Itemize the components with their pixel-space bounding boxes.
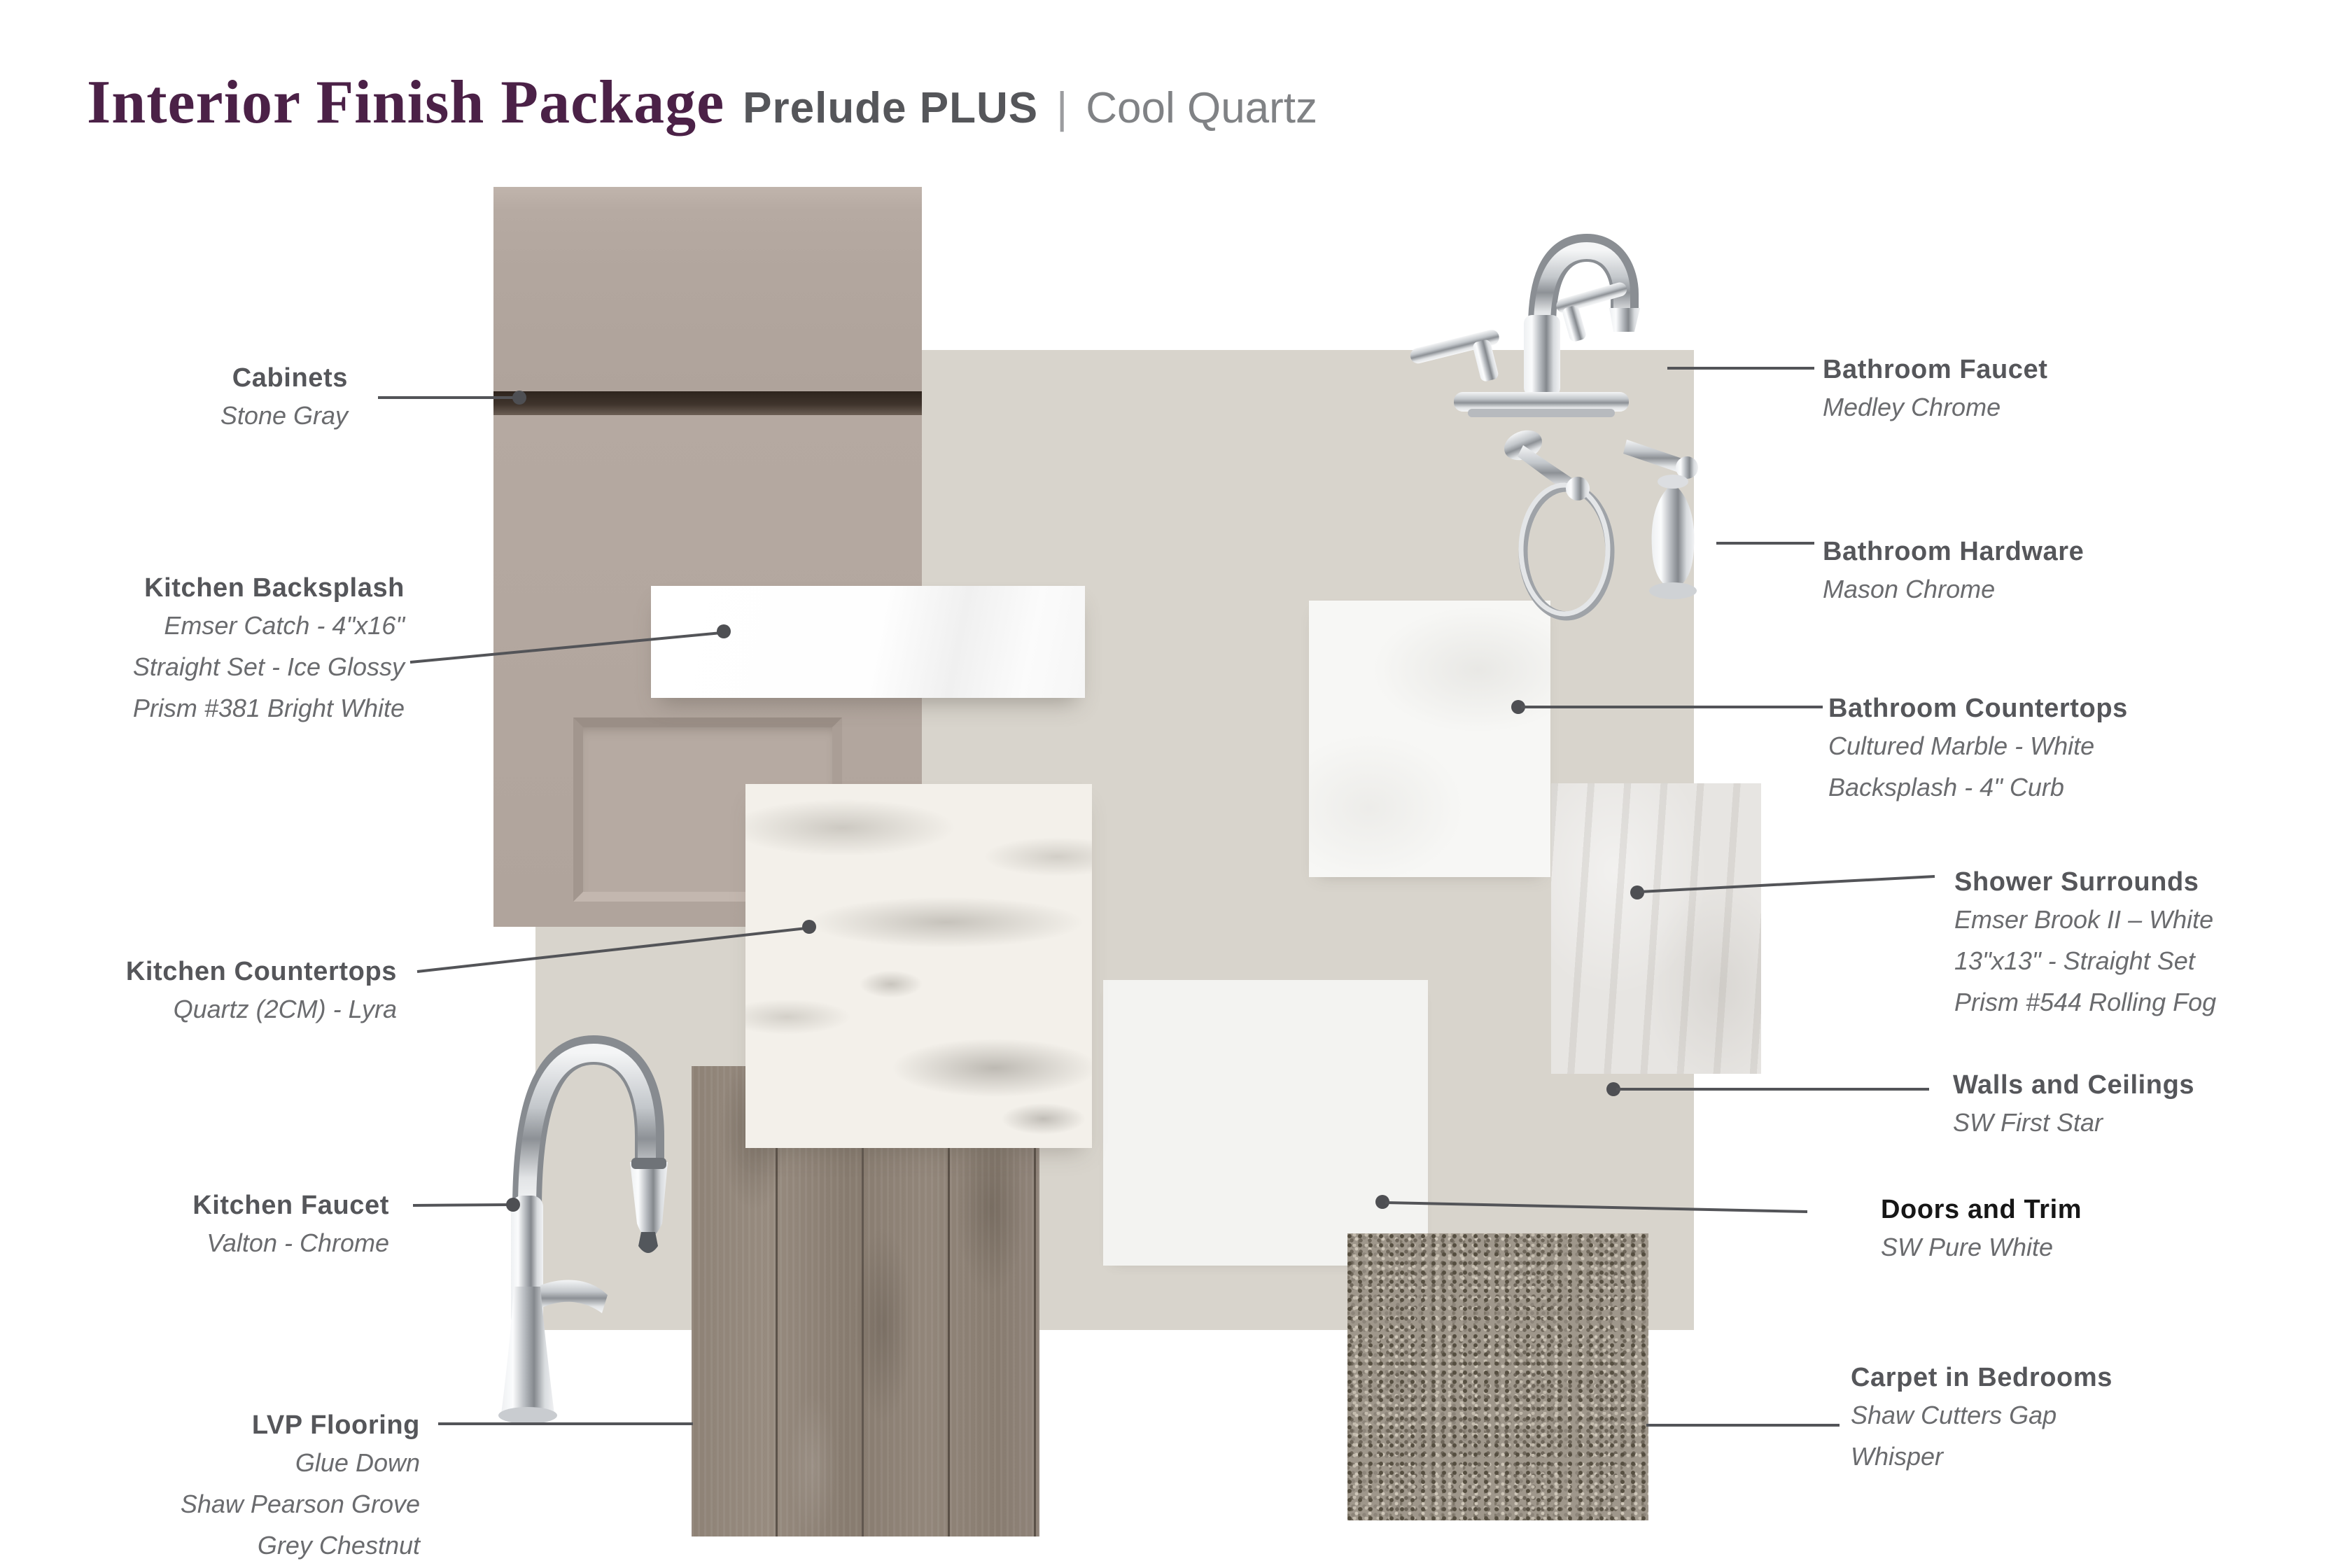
label-kitchen-faucet-sub: Valton - Chrome xyxy=(192,1222,389,1263)
cabinet-shadow-band xyxy=(493,391,922,415)
label-cabinets-title: Cabinets xyxy=(220,361,348,395)
label-kitchen-backsplash-title: Kitchen Backsplash xyxy=(133,571,405,605)
kitchen-countertop-swatch xyxy=(745,784,1092,1148)
label-walls-ceilings: Walls and Ceilings SW First Star xyxy=(1953,1068,2194,1143)
label-kitchen-backsplash-sub: Prism #381 Bright White xyxy=(133,687,405,729)
label-shower-surrounds-sub: 13"x13" - Straight Set xyxy=(1954,940,2216,981)
label-carpet-bedrooms-sub: Shaw Cutters Gap xyxy=(1851,1394,2113,1436)
label-bathroom-countertops: Bathroom Countertops Cultured Marble - W… xyxy=(1828,692,2128,808)
label-kitchen-countertops: Kitchen Countertops Quartz (2CM) - Lyra xyxy=(126,955,397,1030)
doors-trim-swatch xyxy=(1103,980,1428,1266)
label-kitchen-faucet-title: Kitchen Faucet xyxy=(192,1189,389,1222)
page-header: Interior Finish Package Prelude PLUS | C… xyxy=(87,67,1317,138)
label-lvp-flooring-sub: Shaw Pearson Grove xyxy=(181,1483,420,1525)
shower-surround-swatch xyxy=(1551,783,1761,1074)
header-separator: | xyxy=(1056,83,1067,133)
label-bathroom-hardware-title: Bathroom Hardware xyxy=(1823,535,2084,568)
label-bathroom-hardware-sub: Mason Chrome xyxy=(1823,568,2084,610)
label-kitchen-backsplash-sub: Straight Set - Ice Glossy xyxy=(133,646,405,687)
label-bathroom-countertops-sub: Cultured Marble - White xyxy=(1828,725,2128,766)
label-walls-ceilings-sub: SW First Star xyxy=(1953,1102,2194,1143)
label-bathroom-faucet: Bathroom Faucet Medley Chrome xyxy=(1823,353,2047,428)
label-bathroom-countertops-title: Bathroom Countertops xyxy=(1828,692,2128,725)
label-kitchen-backsplash: Kitchen Backsplash Emser Catch - 4"x16" … xyxy=(133,571,405,729)
package-name: Prelude PLUS xyxy=(743,83,1038,133)
label-carpet-bedrooms-sub: Whisper xyxy=(1851,1436,2113,1477)
label-shower-surrounds: Shower Surrounds Emser Brook II – White … xyxy=(1954,865,2216,1023)
label-doors-trim: Doors and Trim SW Pure White xyxy=(1881,1193,2082,1268)
kitchen-backsplash-swatch xyxy=(651,586,1085,698)
page-title: Interior Finish Package xyxy=(87,67,724,138)
label-shower-surrounds-sub: Prism #544 Rolling Fog xyxy=(1954,981,2216,1023)
label-kitchen-backsplash-sub: Emser Catch - 4"x16" xyxy=(133,605,405,646)
label-lvp-flooring-title: LVP Flooring xyxy=(181,1408,420,1442)
label-shower-surrounds-sub: Emser Brook II – White xyxy=(1954,899,2216,940)
label-bathroom-countertops-sub: Backsplash - 4" Curb xyxy=(1828,766,2128,808)
label-shower-surrounds-title: Shower Surrounds xyxy=(1954,865,2216,899)
label-doors-trim-sub: SW Pure White xyxy=(1881,1226,2082,1268)
label-cabinets-sub: Stone Gray xyxy=(220,395,348,436)
label-lvp-flooring-sub: Glue Down xyxy=(181,1442,420,1483)
label-bathroom-faucet-title: Bathroom Faucet xyxy=(1823,353,2047,386)
carpet-swatch xyxy=(1347,1233,1648,1520)
label-carpet-bedrooms-title: Carpet in Bedrooms xyxy=(1851,1361,2113,1394)
label-lvp-flooring-sub: Grey Chestnut xyxy=(181,1525,420,1566)
bathroom-faucet-image xyxy=(1389,204,1697,439)
label-kitchen-countertops-sub: Quartz (2CM) - Lyra xyxy=(126,988,397,1030)
label-doors-trim-title: Doors and Trim xyxy=(1881,1193,2082,1226)
finish-package-board: Interior Finish Package Prelude PLUS | C… xyxy=(0,0,2347,1568)
towel-ring-icon xyxy=(1500,425,1610,616)
bathroom-hardware-image xyxy=(1490,419,1749,632)
label-lvp-flooring: LVP Flooring Glue Down Shaw Pearson Grov… xyxy=(181,1408,420,1566)
label-bathroom-hardware: Bathroom Hardware Mason Chrome xyxy=(1823,535,2084,610)
palette-name: Cool Quartz xyxy=(1086,83,1317,133)
label-bathroom-faucet-sub: Medley Chrome xyxy=(1823,386,2047,428)
kitchen-faucet-image xyxy=(462,986,693,1427)
cabinet-drawer-face xyxy=(493,187,922,391)
label-carpet-bedrooms: Carpet in Bedrooms Shaw Cutters Gap Whis… xyxy=(1851,1361,2113,1477)
label-kitchen-faucet: Kitchen Faucet Valton - Chrome xyxy=(192,1189,389,1263)
bathroom-countertop-swatch xyxy=(1309,601,1550,877)
paper-holder-icon xyxy=(1623,440,1698,599)
label-cabinets: Cabinets Stone Gray xyxy=(220,361,348,436)
label-walls-ceilings-title: Walls and Ceilings xyxy=(1953,1068,2194,1102)
label-kitchen-countertops-title: Kitchen Countertops xyxy=(126,955,397,988)
